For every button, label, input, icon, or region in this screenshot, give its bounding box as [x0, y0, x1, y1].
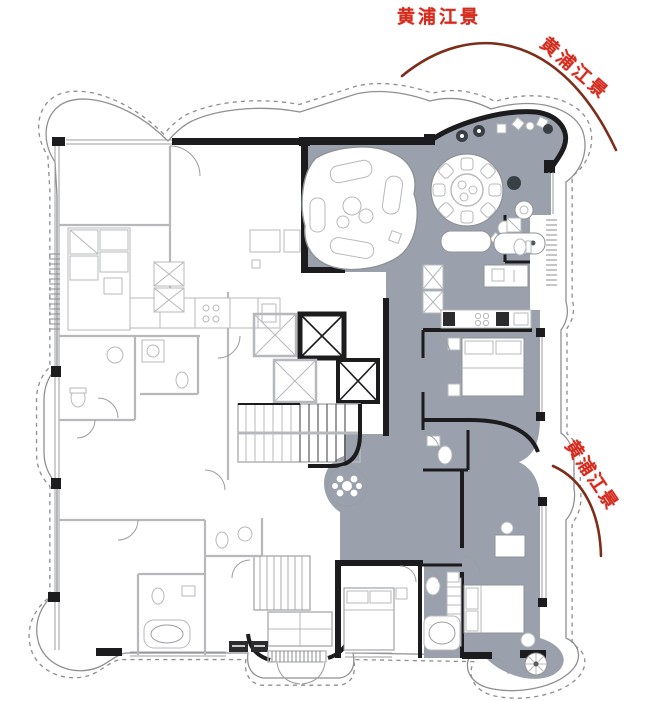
- west-bathroom-3: [216, 527, 252, 548]
- lower-stair-shaft: [254, 556, 332, 646]
- west-unit-partitions: [59, 146, 262, 655]
- river-view-label-top: 黄浦江景: [397, 8, 481, 26]
- main-stairs: [238, 404, 360, 466]
- elevator-4: [338, 360, 378, 402]
- bedroom-c: [344, 566, 416, 650]
- elevator-2: [300, 314, 344, 358]
- hall-cabinets: [423, 265, 443, 313]
- west-unit-outer-walls: [48, 137, 303, 656]
- dining-table-set: [431, 154, 503, 226]
- west-unit: [48, 137, 303, 656]
- west-bathroom-1: [70, 347, 123, 418]
- balcony-fan: [525, 653, 547, 675]
- east-window-hatch: [546, 220, 557, 285]
- living-room-sofa-group: [302, 147, 417, 270]
- west-bathroom-4-tub: [144, 586, 195, 648]
- floor-plan-drawing: [0, 0, 660, 701]
- west-bathroom-2: [142, 340, 188, 388]
- elevator-3: [274, 360, 316, 402]
- floor-plan-canvas: 黄浦江景 黄浦江景 黄浦江景: [0, 0, 660, 701]
